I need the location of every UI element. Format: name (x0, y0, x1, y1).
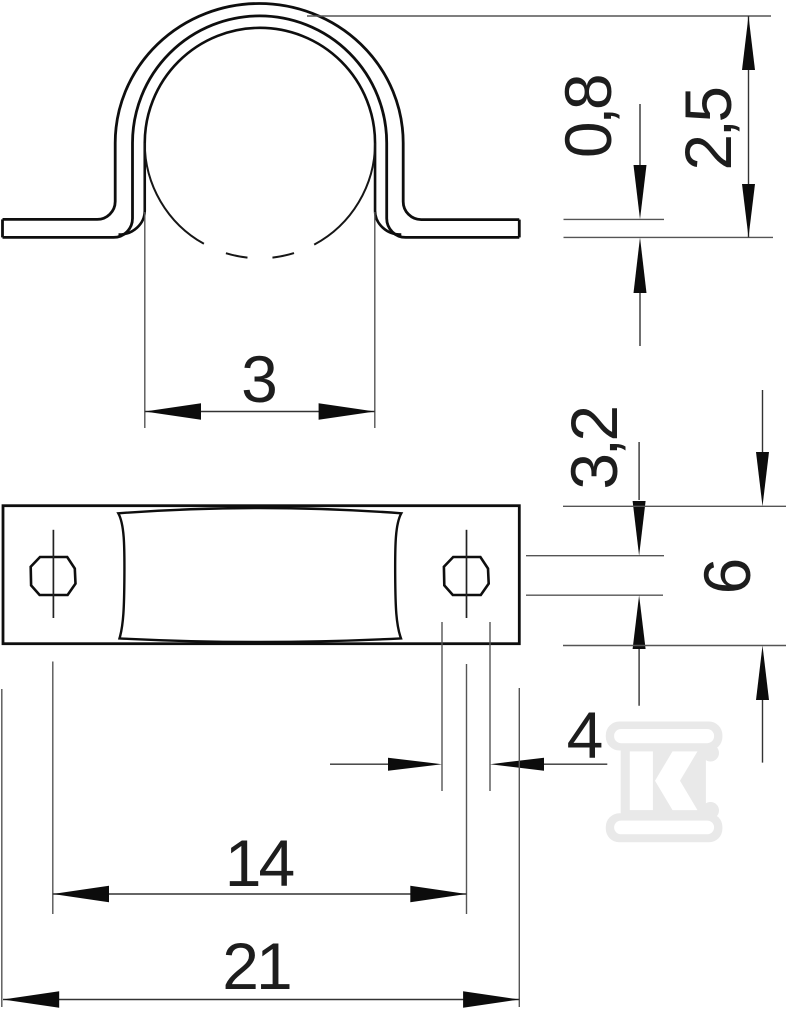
svg-text:3,2: 3,2 (557, 408, 631, 490)
svg-text:4: 4 (567, 698, 604, 772)
svg-text:2,5: 2,5 (671, 89, 745, 171)
svg-text:21: 21 (222, 929, 290, 1003)
svg-text:6: 6 (690, 558, 764, 595)
svg-text:0,8: 0,8 (551, 76, 625, 158)
svg-text:14: 14 (225, 826, 294, 900)
svg-text:3: 3 (241, 342, 278, 416)
